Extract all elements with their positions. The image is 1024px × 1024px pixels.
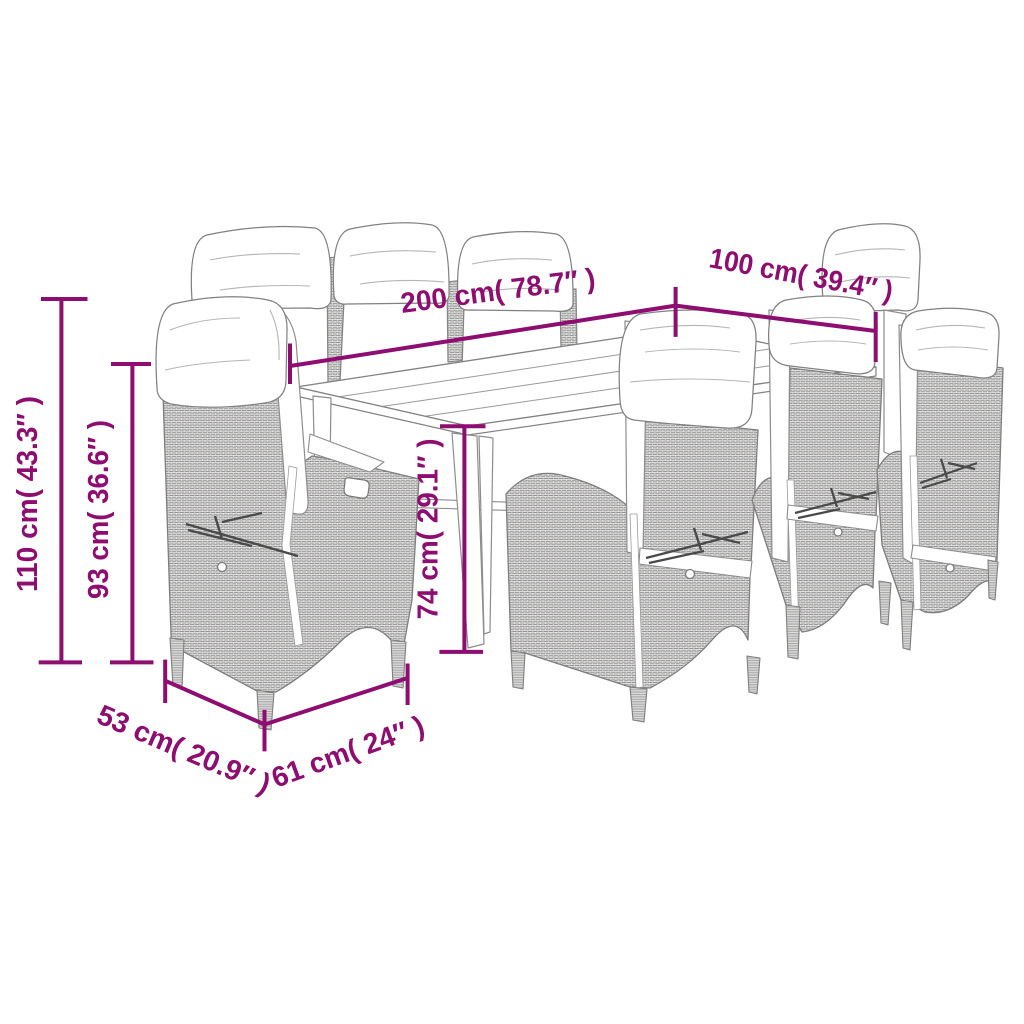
svg-text:93 cm( 36.6″ ): 93 cm( 36.6″ ) <box>83 420 115 599</box>
svg-text:74 cm( 29.1″ ): 74 cm( 29.1″ ) <box>413 439 445 620</box>
svg-text:110 cm( 43.3″ ): 110 cm( 43.3″ ) <box>12 396 44 592</box>
